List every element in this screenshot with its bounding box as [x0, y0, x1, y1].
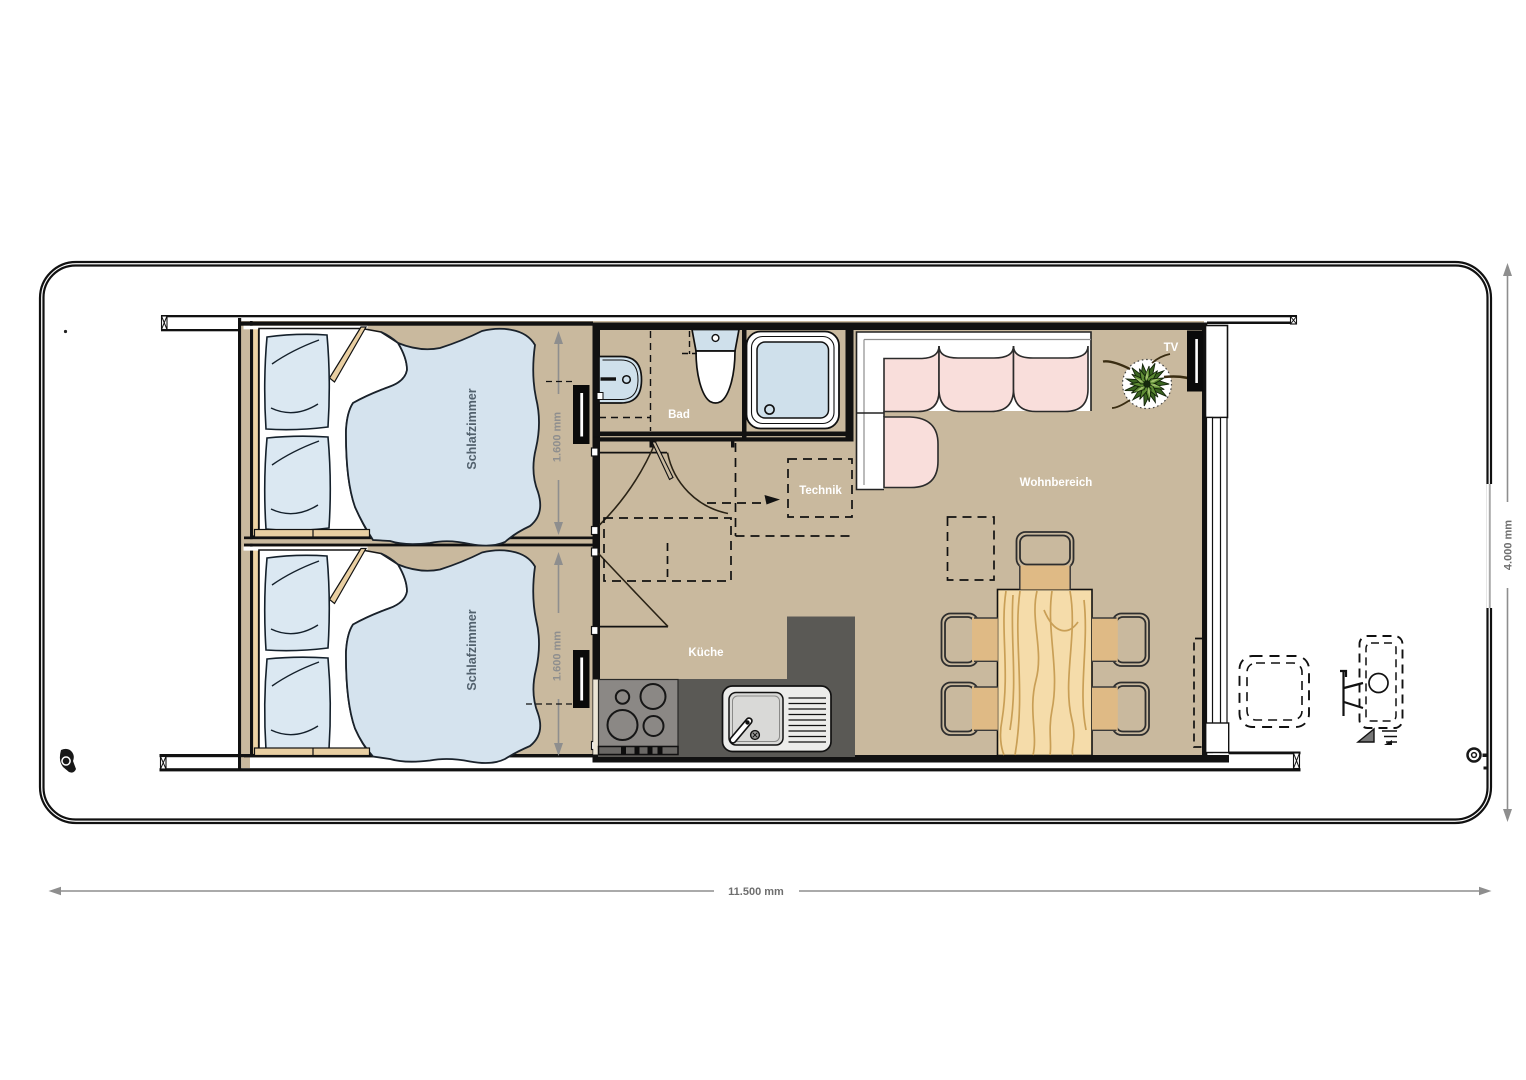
svg-text:Küche: Küche — [688, 647, 723, 659]
svg-text:Schlafzimmer: Schlafzimmer — [465, 388, 479, 469]
svg-text:Schlafzimmer: Schlafzimmer — [465, 609, 479, 690]
svg-text:Bad: Bad — [668, 409, 690, 421]
svg-text:Technik: Technik — [799, 485, 842, 497]
svg-text:1.600 mm: 1.600 mm — [551, 412, 563, 462]
svg-text:11.500 mm: 11.500 mm — [728, 886, 784, 898]
svg-text:4.000 mm: 4.000 mm — [1503, 520, 1515, 570]
svg-text:TV: TV — [1164, 342, 1179, 354]
svg-text:1.600 mm: 1.600 mm — [551, 631, 563, 681]
svg-text:Wohnbereich: Wohnbereich — [1020, 477, 1093, 489]
